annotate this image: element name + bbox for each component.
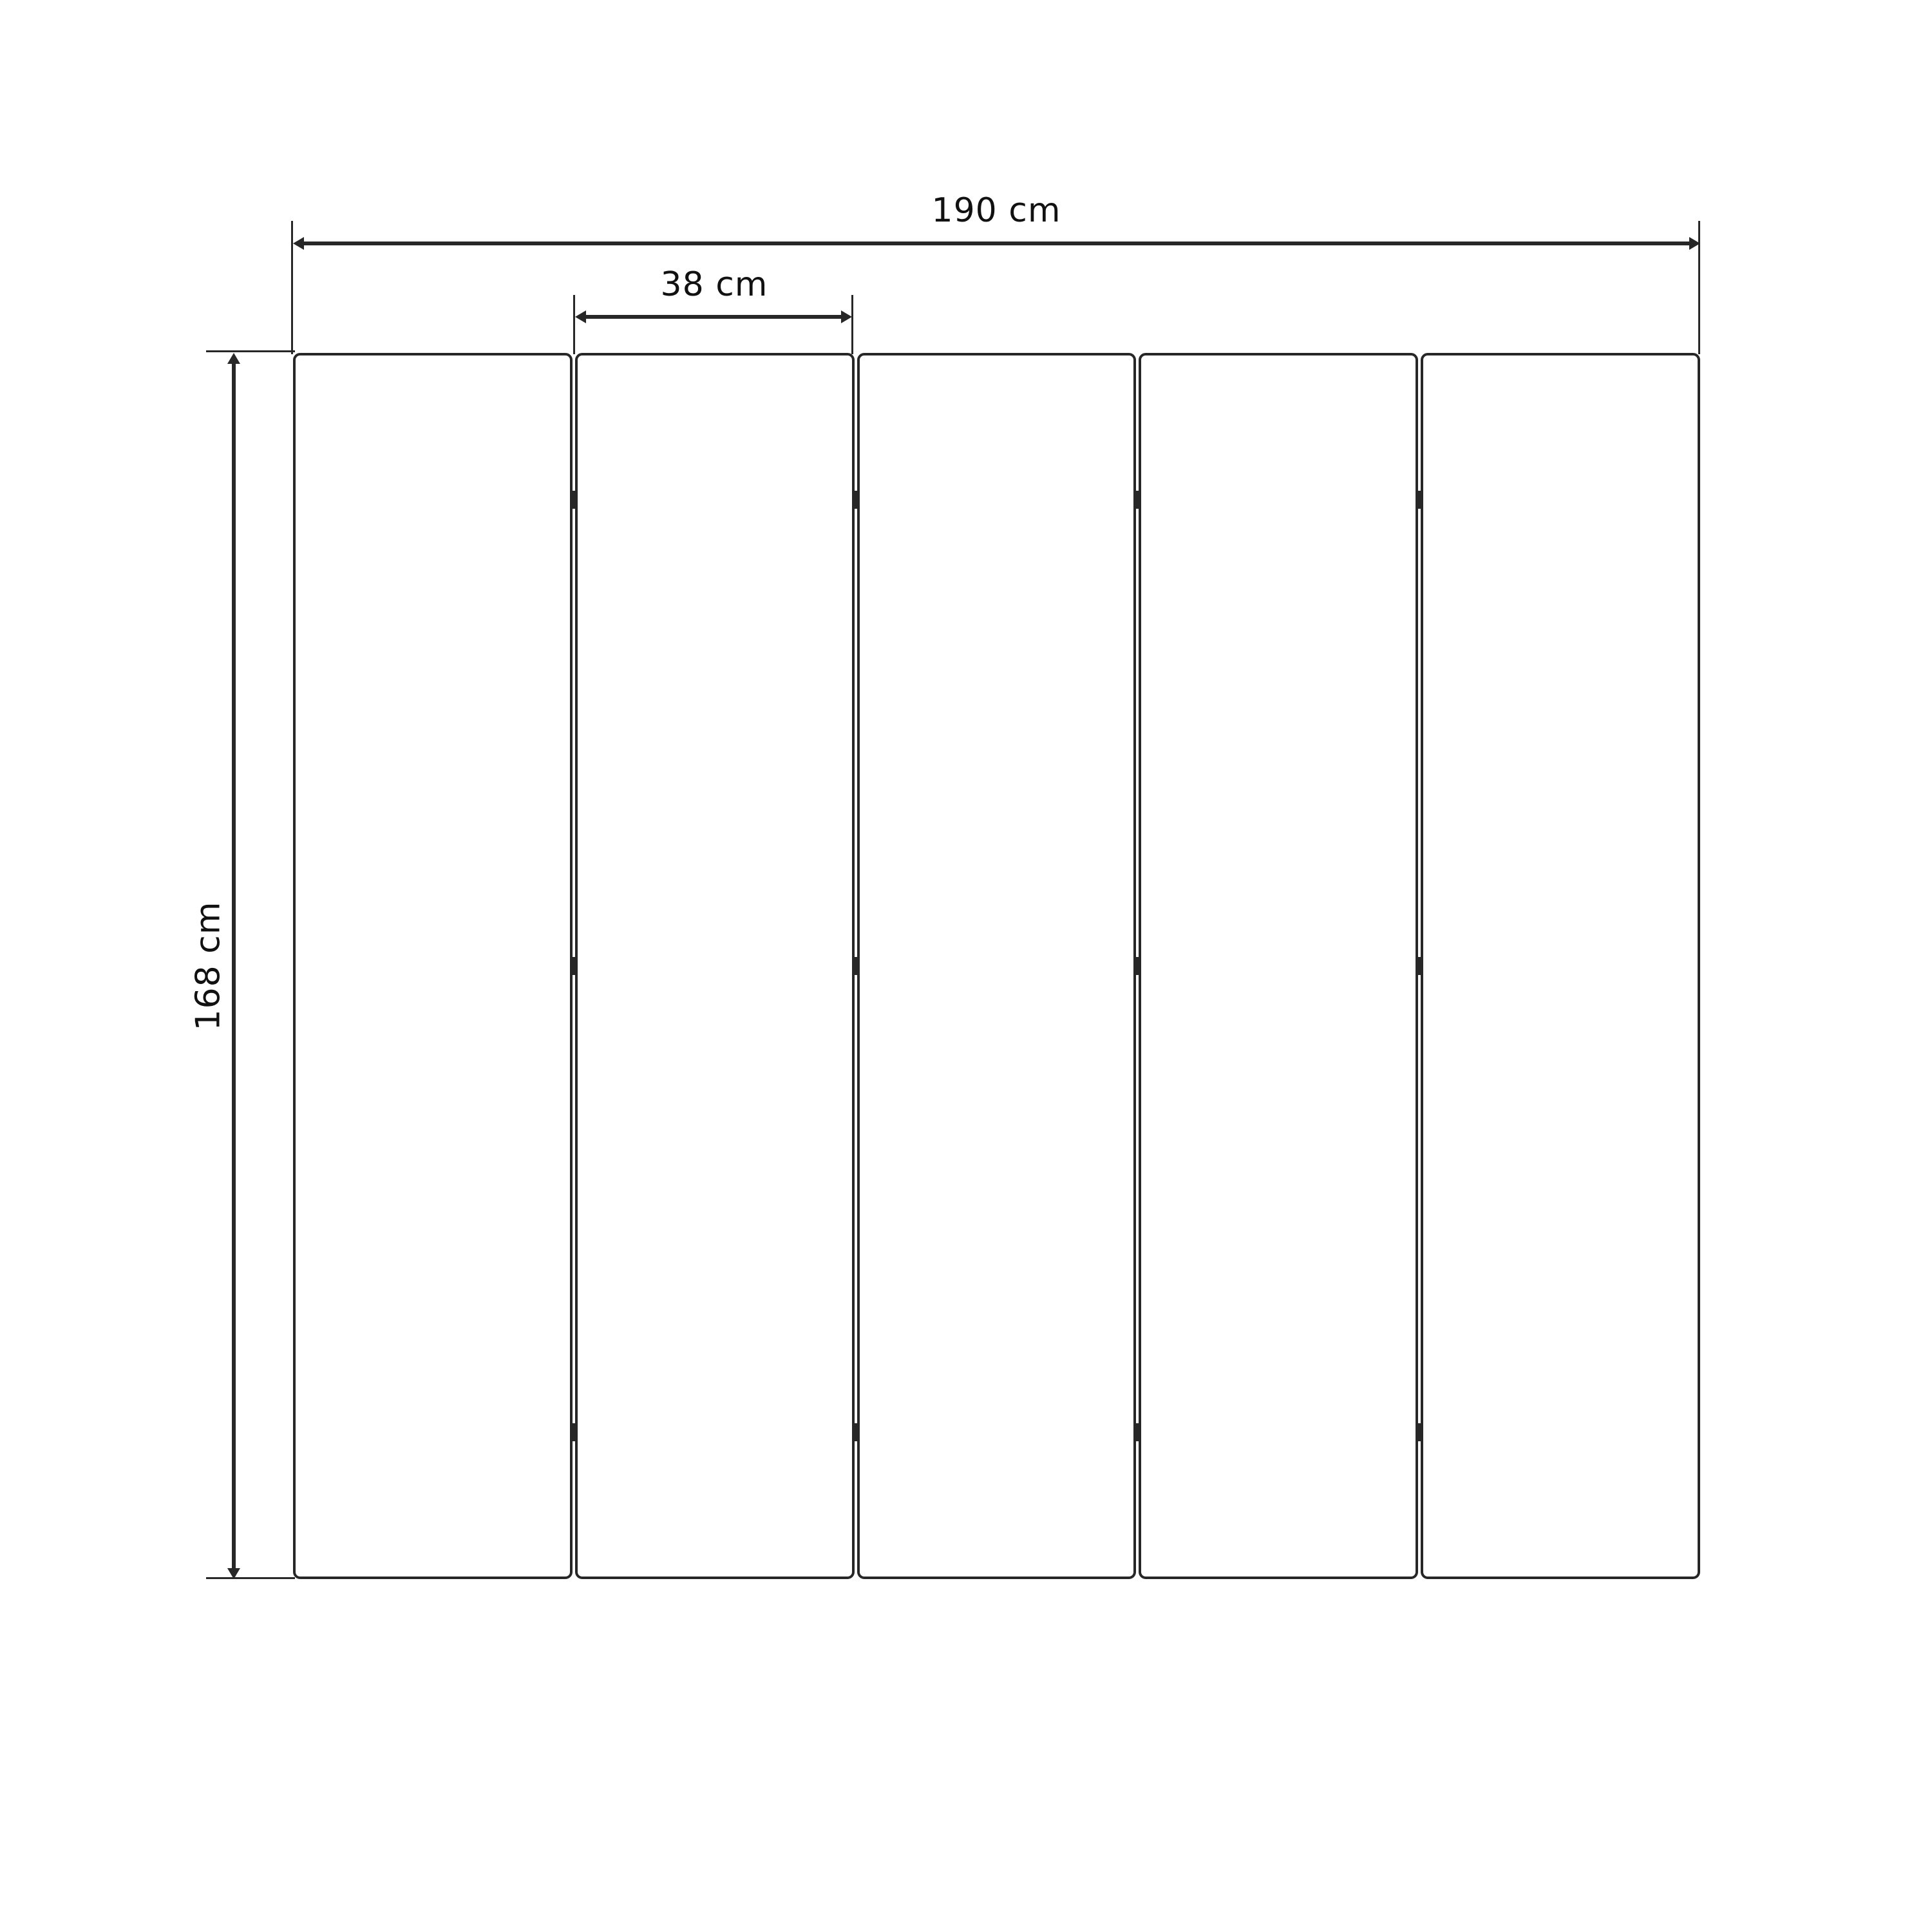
height-label: 168 cm [189, 901, 228, 1030]
hinge-mark [1416, 491, 1423, 509]
hinge-mark [1133, 957, 1141, 975]
panel-width-label: 38 cm [661, 265, 768, 305]
extension-line-left [573, 295, 575, 354]
extension-line-top [206, 350, 295, 352]
extension-line-bottom [206, 1577, 295, 1579]
panel-row [293, 353, 1700, 1579]
panel [857, 353, 1137, 1579]
dimension-line [582, 315, 844, 319]
hinge-mark [852, 491, 860, 509]
arrow-left-icon [293, 237, 304, 250]
hinge-mark [1416, 957, 1423, 975]
hinge-mark [852, 957, 860, 975]
arrow-left-icon [575, 310, 586, 323]
panel [293, 353, 573, 1579]
total-width-label: 190 cm [931, 191, 1061, 231]
arrow-down-icon [227, 1568, 240, 1579]
hinge-mark [1133, 491, 1141, 509]
dimension-line [300, 241, 1691, 245]
arrow-right-icon [1689, 237, 1700, 250]
arrow-up-icon [227, 353, 240, 364]
dimension-line [232, 362, 236, 1570]
hinge-mark [570, 491, 578, 509]
dimension-diagram: 190 cm 38 cm 168 cm [0, 0, 1932, 1932]
hinge-mark [570, 957, 578, 975]
extension-line-right [851, 295, 853, 354]
panel [1139, 353, 1418, 1579]
hinge-mark [570, 1423, 578, 1441]
panel [575, 353, 855, 1579]
panel [1421, 353, 1700, 1579]
arrow-right-icon [841, 310, 852, 323]
hinge-mark [1416, 1423, 1423, 1441]
hinge-mark [1133, 1423, 1141, 1441]
hinge-mark [852, 1423, 860, 1441]
